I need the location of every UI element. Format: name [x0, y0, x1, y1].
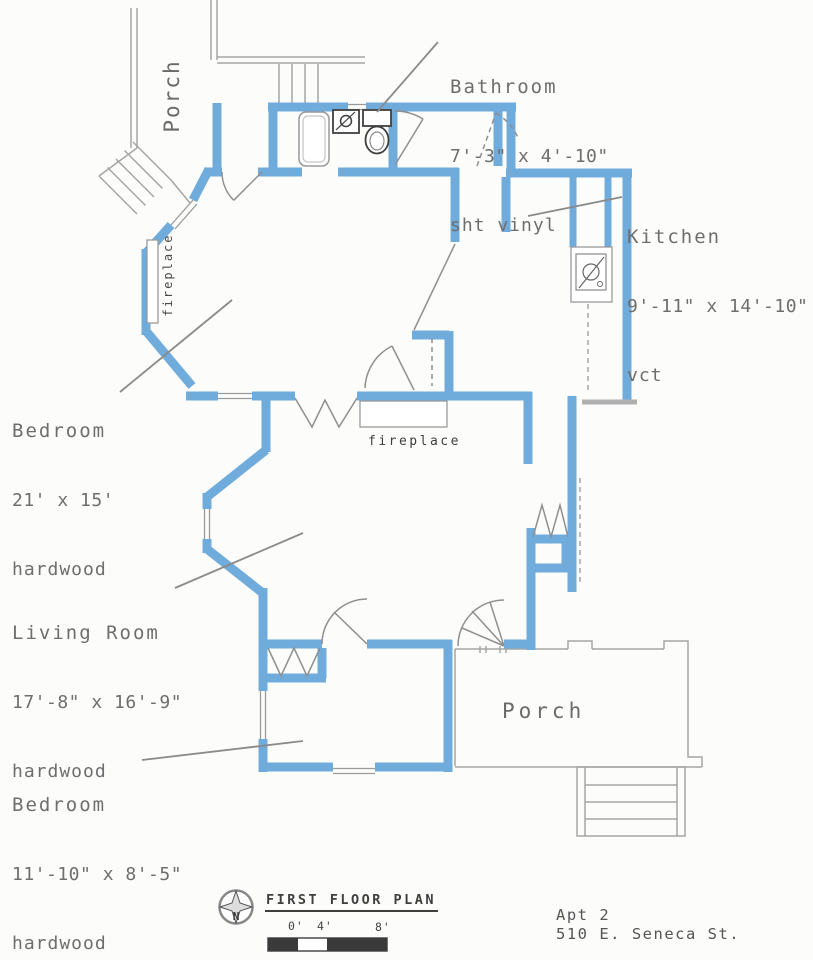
scale-tick-0: 0': [288, 919, 304, 933]
living-room-dims: 17'-8" x 16'-9": [12, 691, 182, 714]
scale-tick-8: 8': [375, 920, 391, 934]
porch-lower-outline: [455, 641, 702, 836]
scale-tick-4: 4': [317, 919, 333, 933]
kitchen-counter-dashed: [580, 304, 588, 586]
bedroom-large-name: Bedroom: [12, 420, 114, 443]
bedroom-small-floor: hardwood: [12, 932, 182, 955]
bathroom-name: Bathroom: [450, 76, 609, 99]
scale-bar: [268, 938, 387, 951]
kitchen-label: Kitchen 9'-11" x 14'-10" vct: [627, 180, 808, 433]
bedroom-small-name: Bedroom: [12, 794, 182, 817]
north-arrow-icon: N: [220, 891, 253, 924]
bedroom-small-label: Bedroom 11'-10" x 8'-5" hardwood: [12, 748, 182, 960]
plan-title: FIRST FLOOR PLAN: [266, 892, 436, 908]
address-label: 510 E. Seneca St.: [556, 925, 740, 943]
staircase-treads: [279, 64, 318, 103]
floor-plan-page: N Bathroom 7'-3" x 4'-10" sht vinyl Kitc…: [0, 0, 813, 960]
sink-icon: [333, 110, 359, 133]
bathroom-dims: 7'-3" x 4'-10": [450, 145, 609, 168]
porch-upper-label: Porch: [160, 36, 184, 156]
bedroom-large-dims: 21' x 15': [12, 489, 114, 512]
porch-lower-label: Porch: [502, 699, 585, 723]
fireplace-bedroom-label: fireplace: [161, 220, 175, 330]
kitchen-dims: 9'-11" x 14'-10": [627, 295, 808, 318]
toilet-icon: [363, 110, 391, 154]
north-arrow-letter: N: [233, 910, 240, 923]
kitchen-floor: vct: [627, 364, 808, 387]
bedroom-small-dims: 11'-10" x 8'-5": [12, 863, 182, 886]
windows: [171, 105, 375, 774]
living-room-name: Living Room: [12, 622, 182, 645]
bathroom-label: Bathroom 7'-3" x 4'-10" sht vinyl: [450, 30, 609, 283]
kitchen-name: Kitchen: [627, 226, 808, 249]
bathroom-floor: sht vinyl: [450, 214, 609, 237]
apartment-label: Apt 2: [556, 906, 610, 924]
fireplace-living-label: fireplace: [368, 434, 461, 449]
bathtub-icon: [299, 112, 329, 166]
